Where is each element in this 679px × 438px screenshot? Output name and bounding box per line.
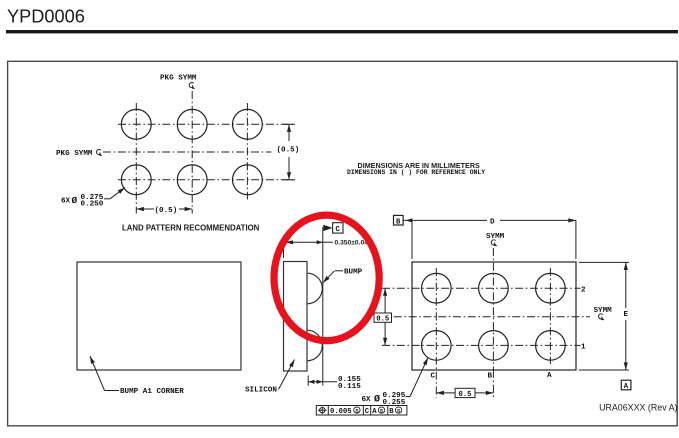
svg-text:0.5: 0.5	[459, 391, 472, 399]
svg-text:B: B	[488, 373, 493, 381]
svg-text:0.005: 0.005	[330, 408, 352, 416]
svg-text:SILICON: SILICON	[245, 387, 277, 395]
svg-text:2: 2	[581, 287, 586, 295]
svg-text:Ø: Ø	[374, 394, 380, 406]
svg-text:Ø: Ø	[72, 195, 78, 206]
svg-text:BUMP: BUMP	[344, 269, 363, 277]
svg-text:E: E	[624, 311, 629, 319]
svg-text:6X: 6X	[362, 396, 372, 404]
svg-text:YPD0006: YPD0006	[7, 7, 85, 27]
svg-text:A: A	[372, 408, 377, 416]
svg-text:B: B	[389, 408, 394, 416]
svg-text:A: A	[547, 372, 552, 380]
svg-text:0.5: 0.5	[376, 316, 389, 324]
svg-text:1: 1	[581, 344, 586, 352]
svg-text:S: S	[397, 408, 401, 415]
svg-text:D: D	[490, 218, 495, 226]
svg-text:PKG SYMM: PKG SYMM	[160, 75, 197, 83]
svg-text:C: C	[335, 226, 340, 234]
svg-text:(0.5): (0.5)	[155, 207, 178, 215]
svg-text:0.350±0.04: 0.350±0.04	[335, 240, 369, 247]
svg-text:URA06XXX (Rev A): URA06XXX (Rev A)	[599, 403, 677, 413]
svg-text:0.115: 0.115	[338, 383, 361, 391]
svg-text:S: S	[380, 408, 384, 415]
svg-text:C: C	[365, 408, 370, 416]
svg-text:A: A	[624, 383, 629, 391]
svg-text:LAND PATTERN RECOMMENDATION: LAND PATTERN RECOMMENDATION	[122, 224, 260, 233]
svg-text:(0.5): (0.5)	[277, 147, 300, 155]
svg-text:B: B	[396, 218, 401, 226]
svg-text:BUMP A1 CORNER: BUMP A1 CORNER	[120, 388, 184, 396]
svg-text:C: C	[431, 373, 436, 381]
svg-text:DIMENSIONS IN ( ) FOR REFERENC: DIMENSIONS IN ( ) FOR REFERENCE ONLY	[347, 169, 485, 176]
svg-text:PKG SYMM: PKG SYMM	[56, 150, 93, 158]
svg-text:S: S	[355, 408, 359, 415]
svg-text:6X: 6X	[61, 198, 71, 206]
svg-text:0.250: 0.250	[81, 201, 104, 209]
svg-text:SYMM: SYMM	[594, 307, 613, 315]
